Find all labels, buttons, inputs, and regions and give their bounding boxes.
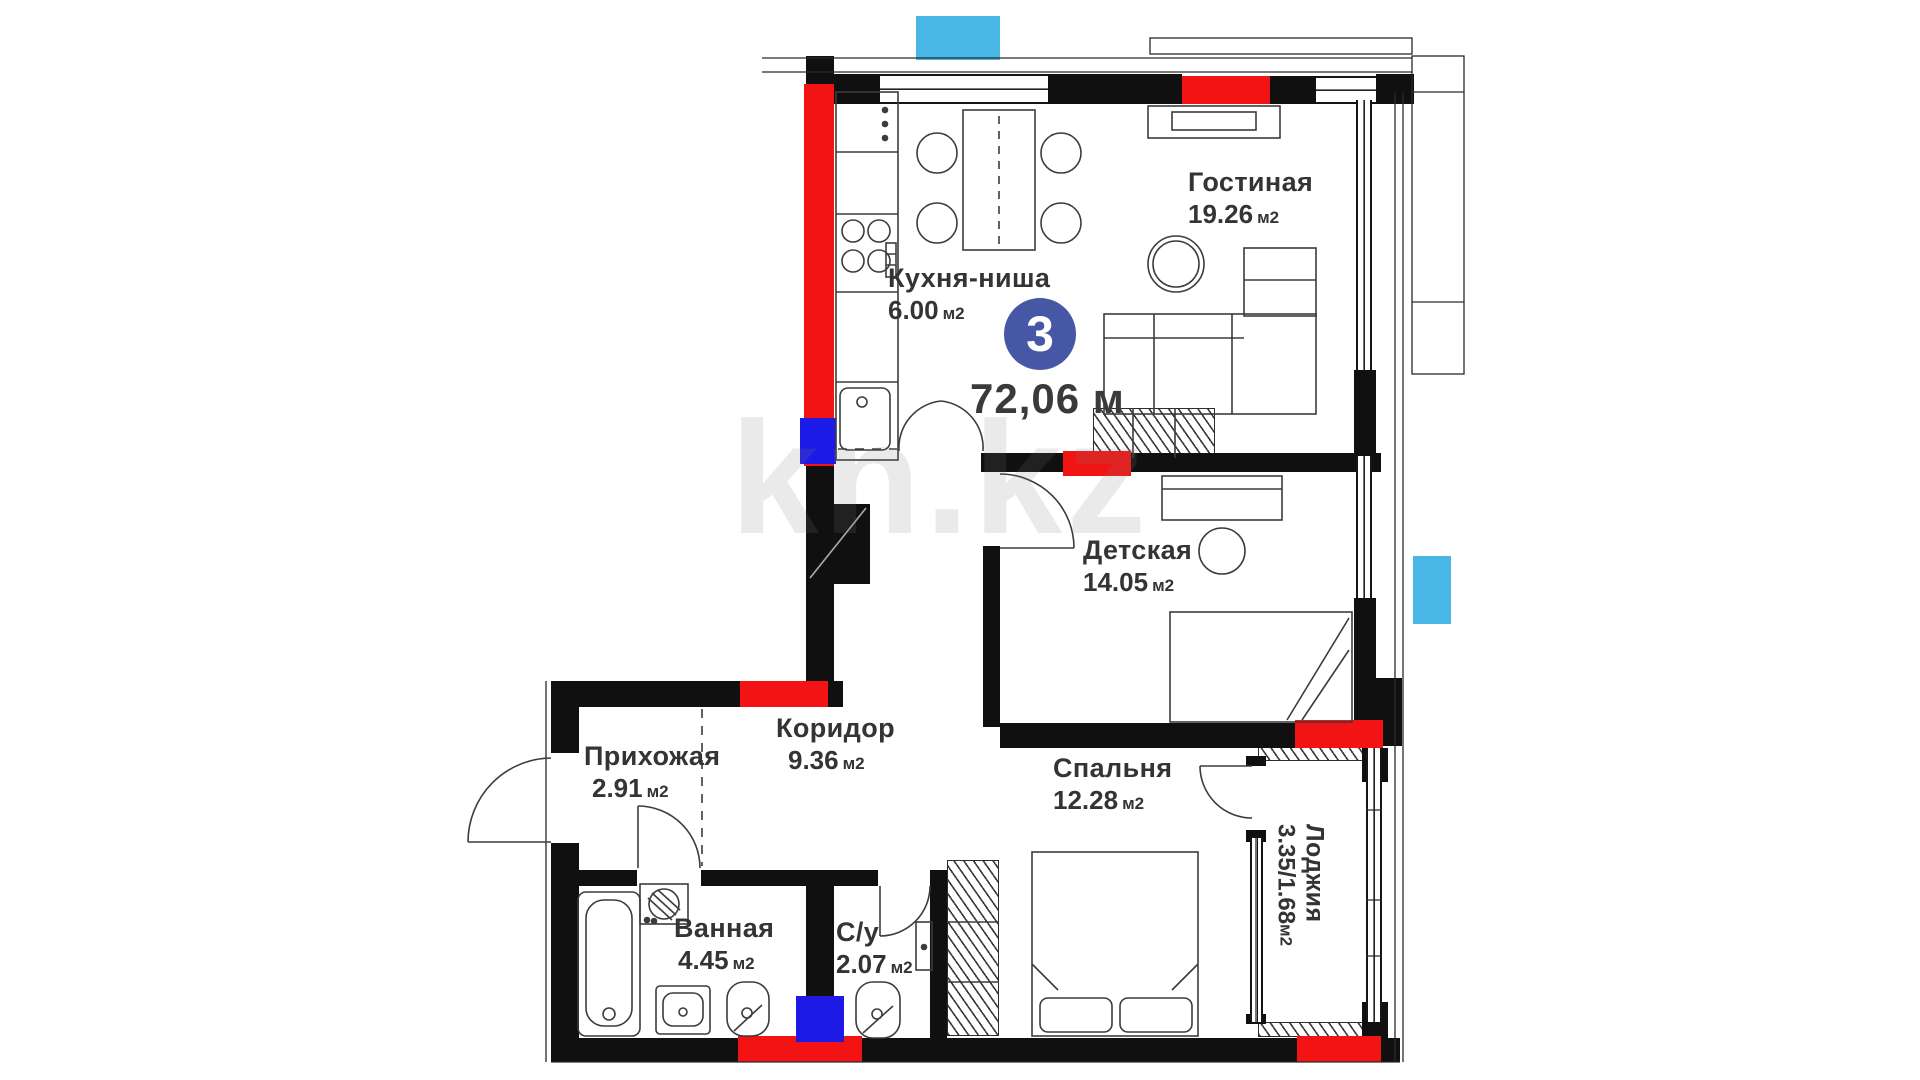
room-name: Кухня-ниша (888, 262, 1050, 295)
room-area: 4.45м2 (674, 945, 774, 977)
room-name: Детская (1083, 534, 1192, 567)
door-loggia (1200, 766, 1252, 818)
room-label-corridor: Коридор 9.36м2 (776, 712, 895, 777)
tv-stand (1148, 106, 1280, 138)
room-name: Гостиная (1188, 166, 1313, 199)
room-name: Спальня (1053, 752, 1172, 785)
room-area: 9.36м2 (776, 745, 895, 777)
wardrobe-living-dividers (1133, 408, 1175, 458)
room-area: 3.35/1.68м2 (1272, 824, 1300, 1034)
bath-sink (656, 986, 710, 1034)
furniture-layer (0, 0, 1920, 1080)
room-name: Ванная (674, 912, 774, 945)
room-name: С/у (836, 916, 913, 949)
room-label-loggia: Лоджия 3.35/1.68м2 (1272, 824, 1328, 1034)
wardrobe-bedroom-dividers (947, 922, 999, 982)
room-label-bedroom: Спальня 12.28м2 (1053, 752, 1172, 817)
room-name: Прихожая (584, 740, 720, 773)
total-area-label: 72,06 м (970, 375, 1125, 423)
children-bed (1170, 612, 1352, 722)
room-area: 2.07м2 (836, 949, 913, 981)
bathtub (578, 892, 640, 1036)
room-label-living: Гостиная 19.26м2 (1188, 166, 1313, 231)
room-label-bathroom: Ванная 4.45м2 (674, 912, 774, 977)
room-area: 19.26м2 (1188, 199, 1313, 231)
dining-set (917, 110, 1081, 250)
door-bathroom (638, 806, 700, 868)
door-children (1000, 474, 1074, 548)
room-label-wc: С/у 2.07м2 (836, 916, 913, 981)
sofa (1104, 248, 1316, 414)
door-entry (468, 758, 551, 842)
floor-plan: Кухня-ниша 6.00м2 Гостиная 19.26м2 Детск… (0, 0, 1920, 1080)
vent-shaft-diagonal (810, 508, 866, 578)
room-label-hallway: Прихожая 2.91м2 (584, 740, 720, 805)
room-name: Лоджия (1300, 824, 1329, 1034)
double-bed (1032, 852, 1198, 1036)
room-area: 12.28м2 (1053, 785, 1172, 817)
room-area: 14.05м2 (1083, 567, 1192, 599)
wc-toilet (856, 982, 900, 1038)
wc-panel (916, 922, 932, 970)
room-area: 2.91м2 (584, 773, 720, 805)
zone-dividers (702, 449, 897, 866)
room-name: Коридор (776, 712, 895, 745)
coffee-table (1148, 236, 1204, 292)
room-label-children: Детская 14.05м2 (1083, 534, 1192, 599)
bath-toilet (727, 982, 769, 1036)
apartment-number-badge: 3 (1004, 298, 1076, 370)
